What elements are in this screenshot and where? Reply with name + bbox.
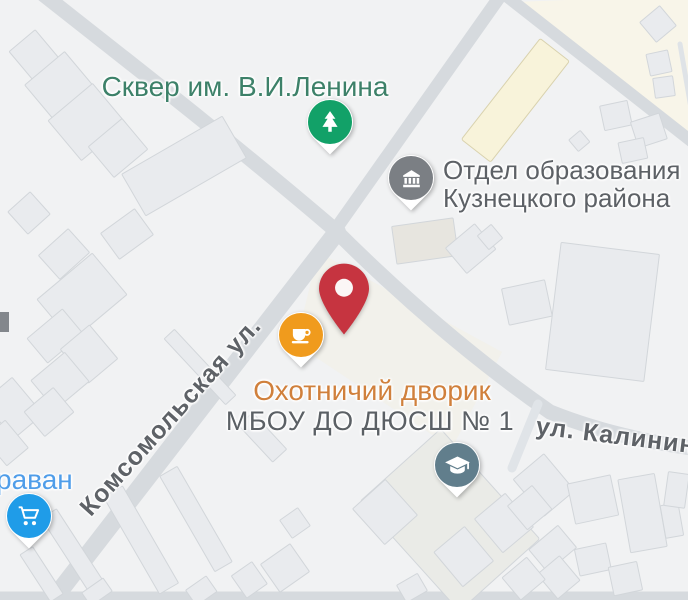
education-department-label[interactable]: Отдел образования Кузнецкого района <box>443 156 680 212</box>
sports-school-label[interactable]: МБОУ ДО ДЮСШ № 1 <box>226 406 514 437</box>
park-label[interactable]: Сквер им. В.И.Ленина <box>102 71 389 103</box>
education-department-label-line1: Отдел образования <box>443 156 680 184</box>
location-pin-icon[interactable] <box>319 262 369 336</box>
shopping-cart-icon <box>7 494 51 538</box>
map-canvas[interactable]: Комсомольская ул. ул. Калинина <box>0 0 688 600</box>
tree-icon <box>308 100 352 144</box>
coffee-cup-icon <box>279 313 323 357</box>
education-department-label-line2: Кузнецкого района <box>443 184 680 212</box>
store-marker[interactable] <box>2 489 56 555</box>
sports-school-marker[interactable] <box>430 438 484 504</box>
cafe-label[interactable]: Охотничий дворик <box>253 375 491 407</box>
museum-icon <box>389 156 433 200</box>
graduation-cap-icon <box>435 443 479 487</box>
highlighted-building <box>461 38 569 162</box>
education-department-marker[interactable] <box>384 151 438 217</box>
store-label[interactable]: раван <box>0 464 73 496</box>
park-marker[interactable] <box>303 95 357 161</box>
